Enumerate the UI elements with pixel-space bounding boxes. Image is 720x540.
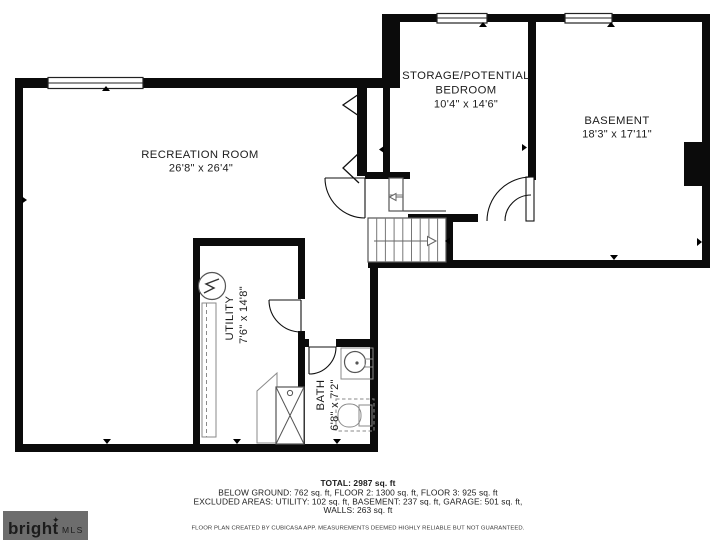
logo-brand-text: bright xyxy=(8,519,59,538)
wall-segment xyxy=(702,14,710,268)
wall-segment xyxy=(15,78,23,452)
window xyxy=(565,14,612,24)
floor-plan-page: RECREATION ROOM 26'8" x 26'4" STORAGE/PO… xyxy=(0,0,720,540)
counter xyxy=(257,373,277,443)
tick xyxy=(333,439,341,444)
tick xyxy=(522,144,527,151)
wall-segment xyxy=(383,82,390,176)
wall-segment xyxy=(298,339,309,347)
logo-suffix-text: MLS xyxy=(62,525,84,535)
tick xyxy=(103,439,111,444)
bath-dims: 6'8" x 7'2" xyxy=(329,379,341,430)
logo-sparkle-icon: ✦ xyxy=(52,515,60,525)
bath-label: BATH xyxy=(315,380,327,411)
area-summary: TOTAL: 2987 sq. ft BELOW GROUND: 762 sq.… xyxy=(191,478,524,532)
wall-segment xyxy=(193,238,200,452)
wall-niche-chevrons xyxy=(343,94,359,183)
tick xyxy=(610,255,618,260)
wall-segment xyxy=(382,14,710,22)
recreation-room-label: RECREATION ROOM xyxy=(141,149,259,161)
storage-room-label-line2: BEDROOM xyxy=(435,85,496,97)
stair-run xyxy=(368,218,446,262)
door-bath xyxy=(309,347,336,374)
summary-walls: WALLS: 263 sq. ft xyxy=(324,505,393,515)
wall-segment xyxy=(193,238,305,246)
chimney-block xyxy=(382,14,400,82)
washer-icon xyxy=(276,387,304,444)
landing-steps xyxy=(389,178,403,211)
floor-plan-drawing: RECREATION ROOM 26'8" x 26'4" STORAGE/PO… xyxy=(0,0,720,540)
stairs xyxy=(368,178,446,262)
door-storage xyxy=(487,177,534,221)
door-utility xyxy=(269,300,301,332)
wall-segment xyxy=(336,339,378,347)
storage-room-label-line1: STORAGE/POTENTIAL xyxy=(402,70,530,82)
chimney-block xyxy=(684,142,703,186)
recreation-room-dims: 26'8" x 26'4" xyxy=(169,163,233,175)
wall-segment xyxy=(528,22,536,180)
summary-total: TOTAL: 2987 sq. ft xyxy=(320,478,395,488)
bath-fixtures xyxy=(336,348,374,431)
water-heater-icon xyxy=(199,273,226,300)
basement-label: BASEMENT xyxy=(584,115,649,127)
closet-shelf xyxy=(202,303,216,437)
basement-dims: 18'3" x 17'11" xyxy=(582,129,652,141)
tick xyxy=(233,439,241,444)
brightmls-logo: bright ✦ MLS xyxy=(3,511,88,540)
window xyxy=(48,78,143,89)
window xyxy=(437,14,487,24)
utility-label: UTILITY xyxy=(224,296,236,341)
storage-room-dims: 10'4" x 14'6" xyxy=(434,99,498,111)
sink-icon xyxy=(341,348,373,379)
door-recreation xyxy=(325,178,365,218)
disclaimer-text: FLOOR PLAN CREATED BY CUBICASA APP. MEAS… xyxy=(191,526,524,532)
tick xyxy=(697,238,702,246)
tick xyxy=(22,197,27,204)
utility-dims: 7'6" x 14'8" xyxy=(238,286,250,344)
wall-segment xyxy=(357,88,367,176)
toilet-icon xyxy=(336,399,374,431)
tick xyxy=(379,146,384,153)
wall-segment xyxy=(298,238,305,299)
